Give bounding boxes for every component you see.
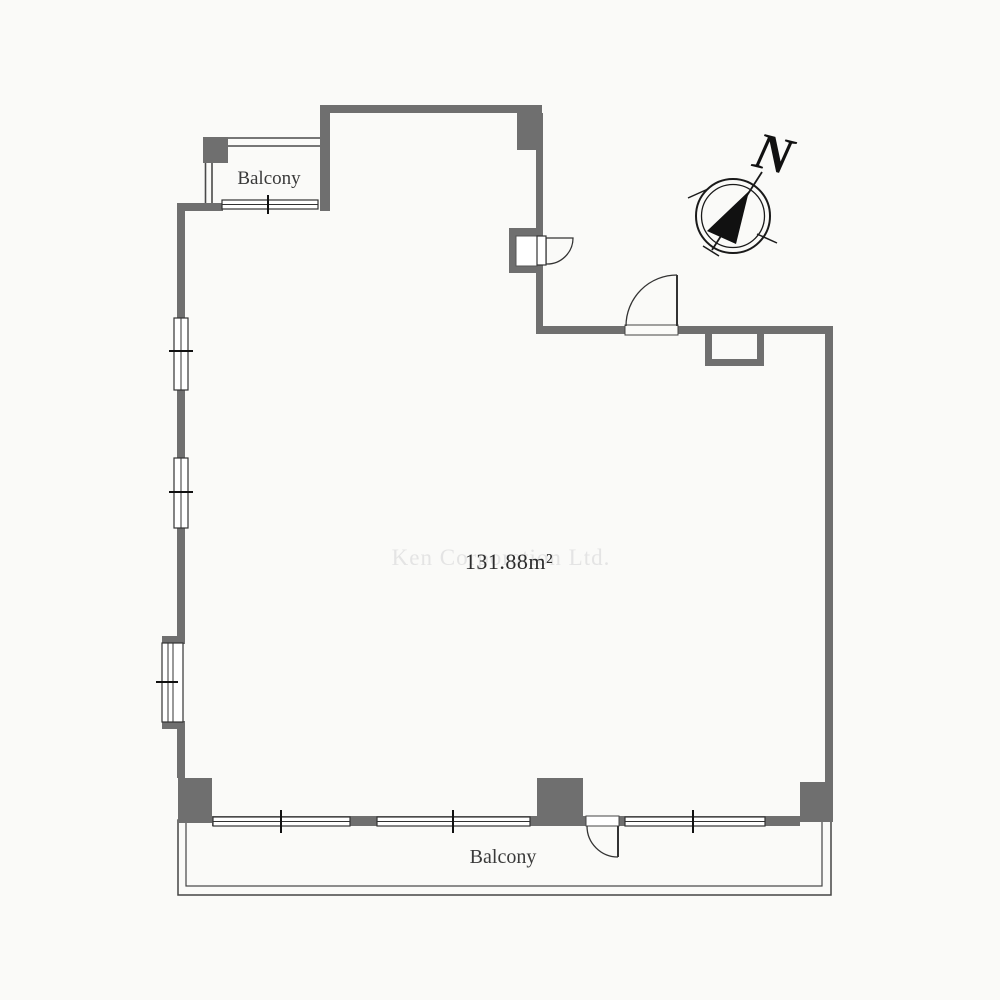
wall-top [320, 105, 542, 113]
compass-tick-nw [688, 189, 708, 198]
pillar-southwest [178, 778, 212, 823]
corridor-door [626, 275, 677, 326]
wall-west-4 [177, 729, 185, 778]
wall-corridor [536, 326, 833, 334]
floor-plan-page: N Ken Corporation Ltd. 131.88m² Balcony … [0, 0, 1000, 1000]
room-area-label: 131.88m² [465, 549, 553, 574]
pillar-southeast [800, 782, 833, 822]
compass-tick-sw [703, 246, 719, 256]
window-south-1 [213, 810, 350, 833]
pipe-shaft-inside [712, 334, 757, 359]
balcony-door [587, 826, 618, 857]
wall-balcony-right [320, 105, 330, 211]
balcony-bottom-label: Balcony [470, 846, 537, 868]
window-south-3 [625, 810, 765, 833]
wall-west-1 [177, 203, 185, 318]
entry-door [537, 236, 573, 265]
compass-needle [707, 191, 749, 244]
door-swing-arc [546, 238, 573, 264]
door-swing-arc [587, 826, 618, 857]
wall-west-2 [177, 390, 185, 458]
door-swing-arc [626, 275, 677, 326]
window-west-bay [156, 643, 183, 722]
wall-northwest [177, 203, 223, 211]
pillar-south-mid [537, 778, 583, 823]
wall-west-3 [177, 528, 185, 636]
window-west-2 [169, 458, 193, 528]
floor-plan-drawing: N Ken Corporation Ltd. 131.88m² Balcony … [0, 0, 1000, 1000]
compass-north-label: N [747, 122, 801, 187]
compass: N [688, 122, 801, 256]
door-leaf [537, 236, 546, 265]
entry-door-opening [516, 236, 537, 266]
balcony-top-label: Balcony [237, 168, 301, 189]
wall-east [825, 334, 833, 786]
balcony-corner-pier [203, 137, 228, 163]
window-top-balcony [222, 195, 318, 214]
corridor-door-threshold [625, 325, 678, 335]
balcony-door-threshold [586, 816, 619, 826]
windows [156, 195, 765, 833]
wall-entry-side [536, 113, 543, 326]
window-west-1 [169, 318, 193, 390]
window-south-2 [377, 810, 530, 833]
